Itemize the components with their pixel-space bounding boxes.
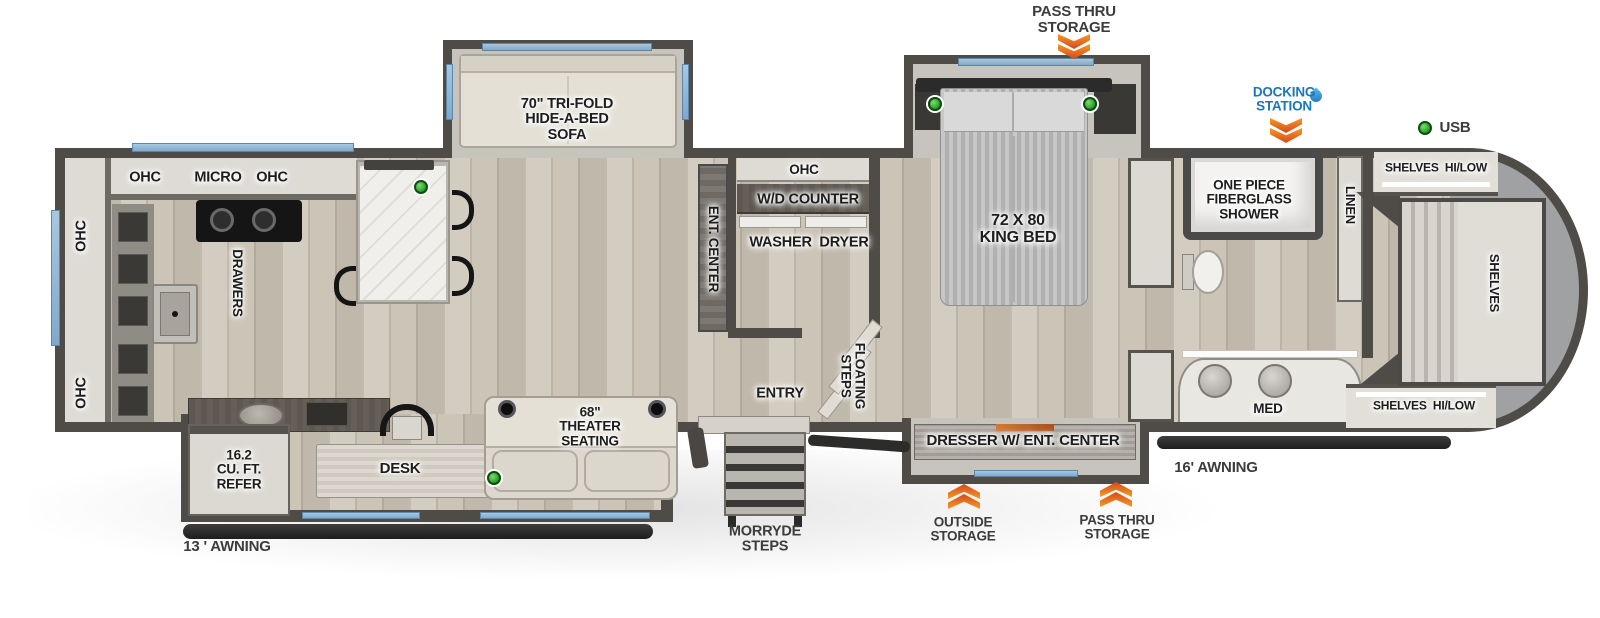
reading-light-right-icon — [1083, 97, 1097, 111]
laundry-wall-right — [869, 158, 880, 338]
bath-closet-wall — [1362, 152, 1373, 358]
awning-bar-left — [183, 524, 653, 539]
laundry-wall-left — [728, 158, 736, 338]
sofa-slide-window-left — [446, 64, 453, 120]
desk-label: DESK — [380, 461, 421, 477]
cooktop-burner-left-icon — [210, 208, 234, 232]
sofa-slide-window-right — [682, 64, 689, 120]
reading-light-left-icon — [928, 97, 942, 111]
shower-label: ONE PIECE FIBERGLASS SHOWER — [1206, 179, 1291, 222]
washer-dryer-label: WASHER DRYER — [749, 235, 868, 250]
rv-floorplan-diagram: PASS THRU STORAGE DOCKING STATION USB 16… — [0, 0, 1600, 618]
drawer-1 — [118, 212, 148, 242]
fireplace-accent — [996, 424, 1054, 431]
cup-holder-right-icon — [648, 400, 666, 418]
awning-left-label: 13 ' AWNING — [183, 539, 271, 555]
kitchen-rear-window — [132, 143, 354, 152]
wd-counter-label: W/D COUNTER — [757, 192, 859, 207]
king-bed-pillow-seam — [1012, 92, 1014, 132]
laundry-wall-bottom — [728, 328, 802, 338]
laundry-ohc-label: OHC — [789, 163, 818, 177]
dresser-slide-window — [974, 470, 1078, 477]
step-tread-2 — [726, 464, 804, 471]
ohc-rear-left-label: OHC — [129, 170, 161, 185]
shelves-front-label: SHELVES — [1487, 254, 1501, 312]
refer-label: 16.2 CU. FT. REFER — [217, 449, 262, 492]
island-bench-edge — [364, 160, 434, 170]
pass-thru-top-arrow-icon — [1058, 34, 1090, 59]
lower-left-window-2 — [480, 512, 650, 519]
drawers-label: DRAWERS — [230, 249, 244, 317]
drawer-5 — [118, 386, 148, 416]
king-slide-window-top — [958, 58, 1094, 66]
kitchen-side-window — [51, 210, 60, 346]
outside-storage-arrow-icon — [948, 484, 980, 509]
king-bed-label: 72 X 80 KING BED — [980, 213, 1057, 247]
cup-holder-left-icon — [498, 400, 516, 418]
ent-center-label: ENT. CENTER — [706, 206, 720, 292]
outside-storage-label: OUTSIDE STORAGE — [930, 516, 995, 545]
vanity-sink-left — [1198, 364, 1232, 398]
cooktop-burner-right-icon — [252, 208, 276, 232]
step-tread-4 — [726, 500, 804, 507]
pass-thru-bottom-arrow-icon — [1100, 482, 1132, 507]
awning-bar-right — [1157, 436, 1451, 449]
shelves-hilow-bottom-label: SHELVES HI/LOW — [1373, 400, 1475, 413]
drawer-3 — [118, 296, 148, 326]
docking-station-label: DOCKING STATION — [1253, 86, 1315, 115]
step-tread-3 — [726, 482, 804, 489]
refrigerator-top-edge — [190, 426, 288, 434]
island-table-top — [360, 166, 446, 300]
usb-indicator-icon — [1418, 121, 1432, 135]
sofa-label: 70" TRI-FOLD HIDE-A-BED SOFA — [521, 97, 613, 143]
step-tread-1 — [726, 446, 804, 453]
pass-thru-storage-bottom-label: PASS THRU STORAGE — [1079, 514, 1154, 543]
desk-chair-seat — [392, 416, 422, 440]
usb-label: USB — [1439, 120, 1470, 136]
ohc-side-upper-label: OHC — [74, 220, 89, 252]
bedroom-closet-upper — [1128, 158, 1174, 288]
lower-left-window-1 — [302, 512, 420, 519]
linen-cabinet — [1337, 156, 1363, 302]
dresser-label: DRESSER W/ ENT. CENTER — [926, 433, 1119, 449]
island-usb-light-icon — [414, 180, 428, 194]
entry-label: ENTRY — [756, 386, 804, 401]
pass-thru-storage-top-label: PASS THRU STORAGE — [1032, 4, 1116, 36]
vanity-sink-right — [1258, 364, 1292, 398]
theater-cushion-left — [492, 450, 578, 492]
sofa-backrest — [461, 56, 675, 73]
theater-cushion-right — [584, 450, 670, 492]
theater-seating-label: 68" THEATER SEATING — [559, 406, 620, 449]
drawer-4 — [118, 344, 148, 374]
micro-label: MICRO — [194, 170, 241, 185]
dryer-front — [805, 216, 867, 228]
linen-label: LINEN — [1343, 186, 1357, 224]
king-bed-pillows — [944, 92, 1084, 132]
theater-usb-light-icon — [487, 471, 501, 485]
washer-front — [739, 216, 801, 228]
shelves-hilow-top-label: SHELVES HI/LOW — [1385, 162, 1487, 175]
sofa-slide-window-top — [482, 43, 652, 51]
front-wardrobe-shelf-stripes — [1402, 202, 1458, 382]
front-shelves-top-bar — [1382, 182, 1490, 187]
ohc-rear-right-label: OHC — [256, 170, 288, 185]
ohc-side-lower-label: OHC — [74, 377, 89, 409]
kitchen-cutting-board — [306, 402, 348, 426]
drawer-2 — [118, 254, 148, 284]
faucet-dot-icon — [172, 311, 178, 317]
floating-steps-label: FLOATING STEPS — [838, 343, 867, 409]
toilet-bowl — [1192, 250, 1224, 294]
docking-station-arrow-icon — [1270, 118, 1302, 143]
morryde-steps-label: MORRYDE STEPS — [729, 525, 801, 556]
bath-mirror — [1182, 350, 1358, 358]
med-label: MED — [1253, 402, 1282, 416]
bedroom-closet-lower — [1128, 350, 1174, 422]
awning-right-label: 16' AWNING — [1174, 460, 1258, 476]
front-shelves-bottom-bar — [1356, 392, 1486, 397]
